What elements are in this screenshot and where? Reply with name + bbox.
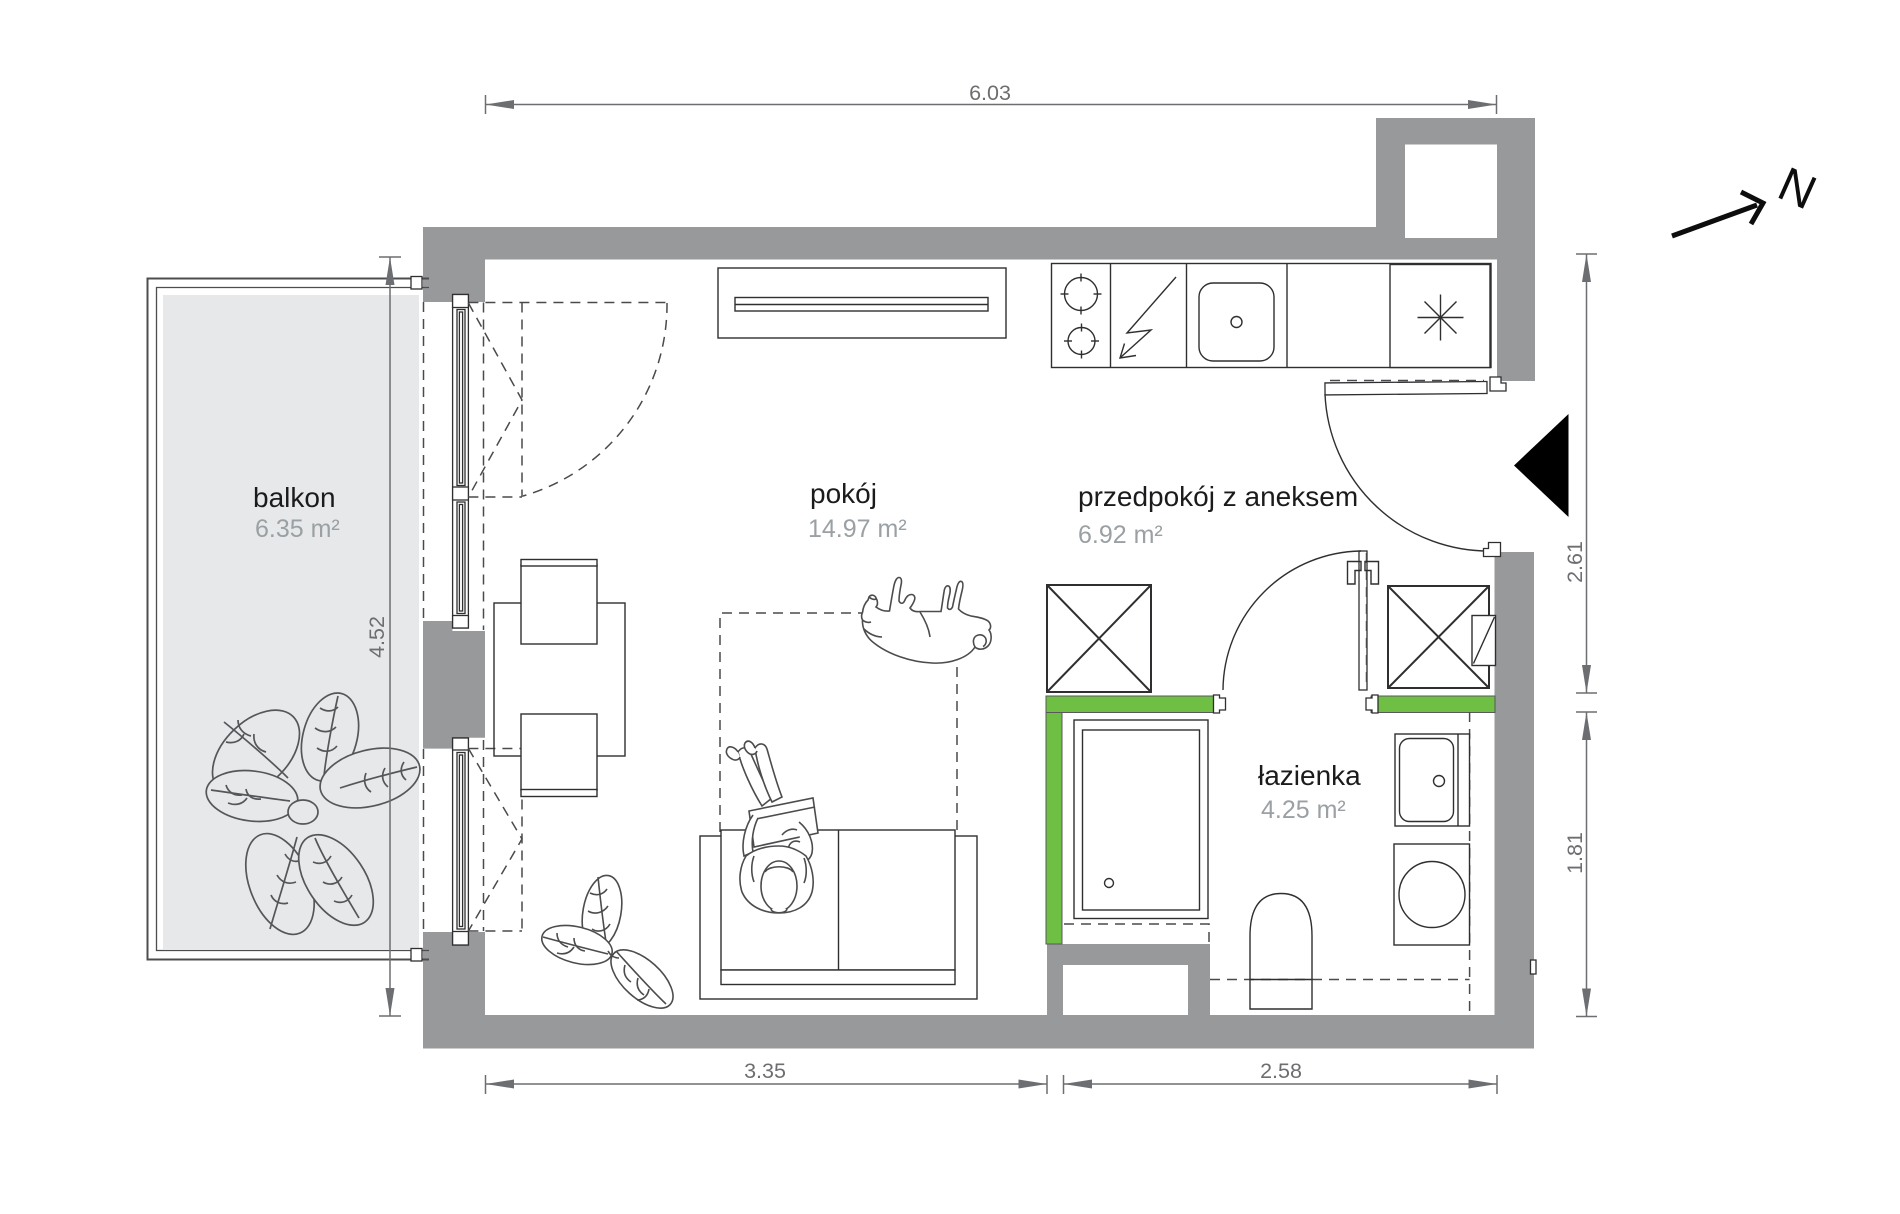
svg-text:przedpokój z aneksem: przedpokój z aneksem — [1078, 481, 1358, 512]
svg-text:14.97 m²: 14.97 m² — [808, 515, 907, 543]
svg-text:pokój: pokój — [810, 478, 877, 509]
svg-text:6.03: 6.03 — [969, 81, 1011, 105]
svg-text:1.81: 1.81 — [1563, 832, 1587, 874]
svg-text:2.58: 2.58 — [1260, 1059, 1302, 1083]
svg-text:4.52: 4.52 — [365, 616, 389, 658]
svg-text:3.35: 3.35 — [744, 1059, 786, 1083]
svg-text:6.35 m²: 6.35 m² — [255, 515, 340, 543]
svg-text:balkon: balkon — [253, 482, 336, 513]
svg-text:6.92 m²: 6.92 m² — [1078, 521, 1163, 549]
svg-text:2.61: 2.61 — [1563, 541, 1587, 583]
svg-text:łazienka: łazienka — [1258, 760, 1361, 791]
svg-text:4.25 m²: 4.25 m² — [1261, 796, 1346, 824]
